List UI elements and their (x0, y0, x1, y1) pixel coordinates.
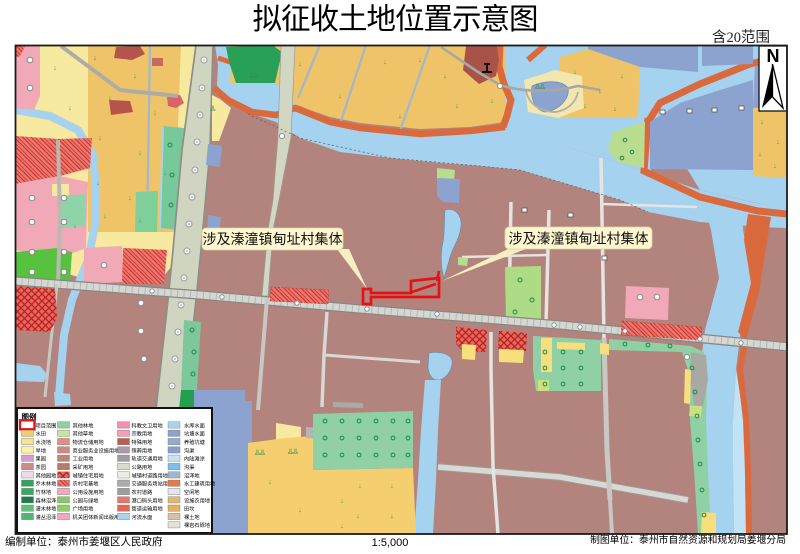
svg-text:其他园地: 其他园地 (36, 471, 57, 479)
svg-text:↓: ↓ (138, 148, 142, 157)
svg-text:宗教用地: 宗教用地 (132, 430, 153, 438)
svg-text:工业用地: 工业用地 (73, 455, 94, 463)
svg-text:↓: ↓ (153, 108, 157, 117)
svg-text:↓: ↓ (598, 86, 602, 95)
svg-text:机关团体新闻出版用地: 机关团体新闻出版用地 (73, 513, 125, 521)
svg-text:灌丛沼泽: 灌丛沼泽 (36, 513, 57, 521)
svg-text:森林沼泽: 森林沼泽 (36, 496, 57, 504)
svg-text:1:5,000: 1:5,000 (372, 537, 409, 549)
svg-text:其他林地: 其他林地 (73, 421, 94, 429)
svg-text:空闲地: 空闲地 (184, 488, 200, 496)
svg-text:↓: ↓ (103, 211, 107, 220)
svg-text:╩╩: ╩╩ (248, 72, 259, 81)
svg-text:旱地: 旱地 (36, 446, 46, 454)
svg-text:特殊用地: 特殊用地 (132, 438, 153, 446)
svg-text:水工建筑用地: 水工建筑用地 (184, 480, 215, 488)
svg-text:↓: ↓ (73, 221, 77, 230)
svg-text:其他草地: 其他草地 (73, 430, 94, 438)
svg-text:项目范围: 项目范围 (36, 421, 57, 429)
svg-text:↓: ↓ (96, 178, 100, 187)
svg-text:沼泽地: 沼泽地 (184, 471, 200, 479)
svg-text:竹林地: 竹林地 (36, 488, 52, 496)
svg-text:╩╩: ╩╩ (254, 449, 265, 458)
svg-text:↓: ↓ (53, 63, 57, 72)
svg-text:养殖坑塘: 养殖坑塘 (184, 438, 205, 446)
svg-text:N: N (767, 46, 780, 66)
svg-text:↓: ↓ (298, 505, 302, 514)
svg-text:↓: ↓ (68, 103, 72, 112)
svg-text:↓: ↓ (490, 96, 494, 105)
svg-text:↓: ↓ (620, 71, 624, 80)
svg-text:涉及溱潼镇甸址村集体: 涉及溱潼镇甸址村集体 (509, 231, 649, 248)
svg-text:↓: ↓ (583, 101, 587, 110)
svg-text:↓: ↓ (138, 215, 142, 224)
svg-text:沟渠: 沟渠 (184, 463, 194, 471)
svg-text:↓: ↓ (356, 511, 360, 520)
svg-text:编制单位：泰州市姜堰区人民政府: 编制单位：泰州市姜堰区人民政府 (5, 535, 163, 548)
svg-text:内陆滩涂: 内陆滩涂 (184, 455, 206, 463)
svg-text:↓: ↓ (760, 117, 764, 126)
svg-text:物流仓储用地: 物流仓储用地 (73, 438, 104, 446)
svg-text:管道运输用地: 管道运输用地 (132, 505, 163, 513)
svg-text:河流水面: 河流水面 (132, 513, 153, 521)
svg-text:设施农用地: 设施农用地 (184, 496, 210, 504)
svg-text:坑塘水面: 坑塘水面 (184, 430, 205, 438)
svg-text:城镇住宅用地: 城镇住宅用地 (73, 471, 104, 479)
svg-text:港口码头用地: 港口码头用地 (132, 496, 163, 504)
svg-text:裸土地: 裸土地 (184, 513, 200, 521)
svg-text:↓: ↓ (758, 149, 762, 158)
svg-text:采矿用地: 采矿用地 (73, 463, 94, 471)
svg-text:↓: ↓ (573, 67, 577, 76)
svg-text:↓: ↓ (776, 137, 780, 146)
svg-text:灌木林地: 灌木林地 (36, 505, 57, 513)
svg-text:果园: 果园 (36, 456, 46, 463)
svg-text:田坎: 田坎 (184, 505, 194, 513)
svg-text:公用设施用地: 公用设施用地 (73, 488, 104, 496)
svg-text:商业服务业设施用地: 商业服务业设施用地 (73, 446, 120, 454)
svg-text:水浇地: 水浇地 (36, 438, 52, 446)
svg-text:↓: ↓ (340, 521, 344, 530)
svg-text:农村宅基地: 农村宅基地 (73, 480, 99, 488)
svg-text:↓: ↓ (254, 65, 258, 74)
svg-text:↓: ↓ (358, 481, 362, 490)
svg-text:含20范围: 含20范围 (712, 29, 770, 46)
svg-text:↓: ↓ (455, 101, 459, 110)
svg-text:╩╩: ╩╩ (534, 83, 545, 92)
svg-text:↓: ↓ (268, 477, 272, 486)
svg-text:茶园: 茶园 (36, 463, 46, 471)
svg-text:涉及溱潼镇甸址村集体: 涉及溱潼镇甸址村集体 (203, 231, 343, 248)
svg-text:↓: ↓ (383, 57, 387, 66)
svg-text:农村道路: 农村道路 (132, 488, 154, 496)
svg-text:沟渠: 沟渠 (184, 446, 194, 454)
svg-text:轨道交通用地: 轨道交通用地 (132, 455, 163, 463)
svg-text:水库水面: 水库水面 (184, 421, 205, 429)
svg-text:拟征收土地位置示意图: 拟征收土地位置示意图 (252, 3, 537, 36)
svg-text:↓: ↓ (773, 161, 777, 170)
svg-text:↓: ↓ (398, 111, 402, 120)
svg-text:↓: ↓ (298, 59, 302, 68)
svg-text:↓: ↓ (613, 104, 617, 113)
svg-text:↓: ↓ (338, 91, 342, 100)
svg-text:乔木林地: 乔木林地 (36, 480, 57, 488)
svg-text:交通服务场站用地: 交通服务场站用地 (132, 480, 174, 488)
svg-text:╩: ╩ (210, 105, 216, 114)
svg-text:↓: ↓ (58, 143, 62, 152)
svg-text:↓: ↓ (443, 71, 447, 80)
svg-text:↓: ↓ (390, 511, 394, 520)
svg-text:↓: ↓ (98, 133, 102, 142)
svg-text:↓: ↓ (390, 481, 394, 490)
svg-text:↓: ↓ (340, 496, 344, 505)
svg-text:科教文卫用地: 科教文卫用地 (132, 421, 163, 429)
svg-text:↓: ↓ (108, 93, 112, 102)
svg-text:↓: ↓ (418, 55, 422, 64)
svg-text:↓: ↓ (128, 193, 132, 202)
svg-text:水田: 水田 (36, 430, 46, 438)
svg-text:╩╩: ╩╩ (287, 448, 298, 457)
svg-text:城镇村道路用地: 城镇村道路用地 (132, 471, 168, 479)
svg-text:↓: ↓ (133, 71, 137, 80)
svg-text:制图单位：泰州市自然资源和规划局姜堰分局: 制图单位：泰州市自然资源和规划局姜堰分局 (590, 533, 786, 546)
svg-text:广场用地: 广场用地 (73, 505, 94, 513)
svg-text:殡葬用地: 殡葬用地 (132, 446, 153, 454)
svg-text:裸岩石砾地: 裸岩石砾地 (184, 521, 210, 529)
svg-text:↓: ↓ (163, 168, 167, 177)
svg-text:公路用地: 公路用地 (132, 463, 153, 471)
svg-text:公园与绿地: 公园与绿地 (73, 496, 99, 504)
svg-text:↓: ↓ (93, 53, 97, 62)
